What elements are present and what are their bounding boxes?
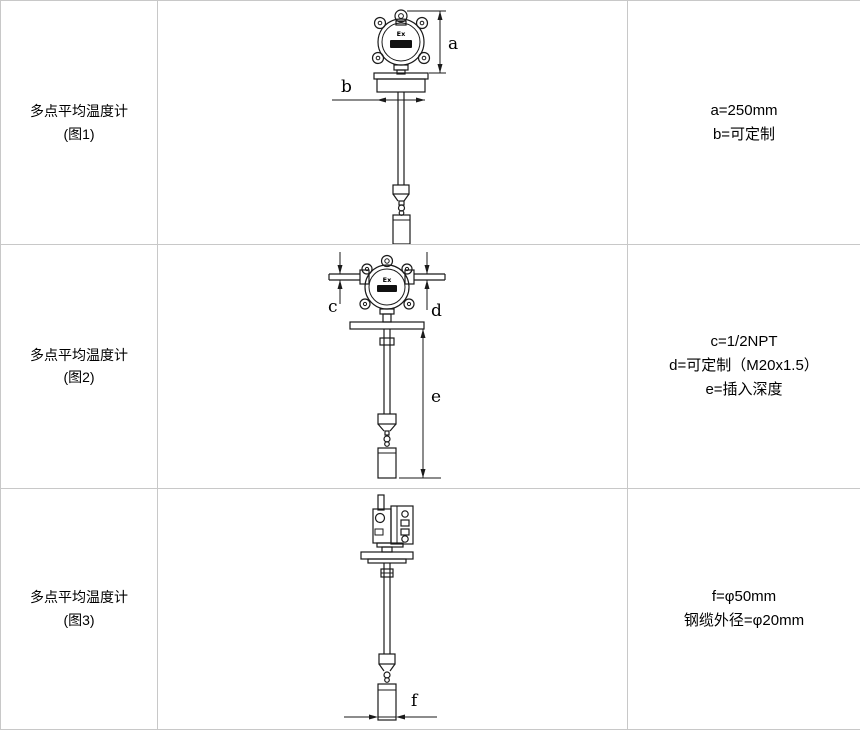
dimension-f: f bbox=[344, 691, 437, 720]
transmitter-head bbox=[373, 495, 413, 552]
head-stem bbox=[378, 495, 384, 510]
row3-label-cell: 多点平均温度计 (图3) bbox=[1, 488, 158, 729]
head-neck bbox=[382, 547, 392, 552]
spec-line: f=φ50mm bbox=[628, 585, 860, 609]
dim-label-b: b bbox=[341, 77, 352, 97]
row2-spec-cell: c=1/2NPT d=可定制（M20x1.5） e=插入深度 bbox=[628, 245, 860, 488]
bottom-weight bbox=[393, 215, 410, 244]
dim-label-e: e bbox=[431, 387, 441, 407]
bottom-weight bbox=[378, 684, 396, 720]
ex-marking: Ex bbox=[382, 276, 391, 284]
mounting-flange bbox=[350, 322, 424, 329]
product-spec-table: 多点平均温度计 (图1) Ex bbox=[0, 0, 860, 730]
display-window bbox=[377, 285, 397, 292]
row1-label-cell: 多点平均温度计 (图1) bbox=[1, 1, 158, 245]
ex-marking: Ex bbox=[396, 30, 405, 38]
dimension-e: e bbox=[399, 329, 441, 478]
probe-rod bbox=[378, 329, 396, 431]
terminal-port bbox=[401, 520, 409, 526]
head-neck bbox=[394, 65, 408, 70]
probe-rod bbox=[393, 92, 409, 201]
mounting-flange bbox=[374, 73, 428, 92]
dimension-d: d bbox=[424, 252, 442, 321]
spec-line: e=插入深度 bbox=[628, 378, 860, 402]
table-row: 多点平均温度计 (图2) bbox=[1, 245, 860, 488]
head-neck bbox=[380, 309, 394, 314]
row3-diagram-cell: f bbox=[158, 488, 628, 729]
product-name: 多点平均温度计 bbox=[1, 586, 157, 608]
dimension-b: b bbox=[332, 77, 425, 103]
figure-ref: (图1) bbox=[1, 123, 157, 145]
spec-line: a=250mm bbox=[628, 99, 860, 123]
dim-label-f: f bbox=[411, 691, 419, 711]
cable-link bbox=[384, 431, 390, 446]
table-row: 多点平均温度计 (图3) bbox=[1, 488, 860, 729]
dimension-a: a bbox=[407, 11, 458, 73]
transmitter-head: Ex bbox=[372, 17, 429, 74]
row3-spec-cell: f=φ50mm 钢缆外径=φ20mm bbox=[628, 488, 860, 729]
spec-line: b=可定制 bbox=[628, 123, 860, 147]
dimension-c: c bbox=[328, 252, 343, 317]
dim-label-d: d bbox=[431, 301, 442, 321]
row1-spec-cell: a=250mm b=可定制 bbox=[628, 1, 860, 245]
spec-line: d=可定制（M20x1.5） bbox=[628, 354, 860, 378]
cable-link bbox=[384, 672, 390, 682]
dim-label-c: c bbox=[328, 297, 338, 317]
transmitter-head: Ex bbox=[360, 264, 414, 322]
figure-ref: (图2) bbox=[1, 366, 157, 388]
row2-label-cell: 多点平均温度计 (图2) bbox=[1, 245, 158, 488]
display-window bbox=[390, 40, 412, 48]
dim-label-a: a bbox=[448, 34, 458, 54]
terminal-port bbox=[401, 511, 407, 517]
terminal-port bbox=[401, 536, 407, 542]
row2-diagram-cell: Ex c bbox=[158, 245, 628, 488]
product-name: 多点平均温度计 bbox=[1, 100, 157, 122]
spec-line: c=1/2NPT bbox=[628, 330, 860, 354]
bottom-weight bbox=[378, 448, 396, 478]
terminal-port bbox=[401, 529, 409, 535]
thermometer-figure-2: Ex c bbox=[159, 246, 627, 487]
cable-link bbox=[398, 201, 404, 215]
figure-ref: (图3) bbox=[1, 609, 157, 631]
mounting-flange bbox=[361, 552, 413, 563]
spec-line: 钢缆外径=φ20mm bbox=[628, 609, 860, 633]
table-row: 多点平均温度计 (图1) Ex bbox=[1, 1, 860, 245]
thermometer-figure-3: f bbox=[159, 489, 627, 729]
probe-rod bbox=[379, 563, 395, 671]
row1-diagram-cell: Ex a bbox=[158, 1, 628, 245]
thermometer-figure-1: Ex a bbox=[159, 2, 627, 244]
product-name: 多点平均温度计 bbox=[1, 344, 157, 366]
